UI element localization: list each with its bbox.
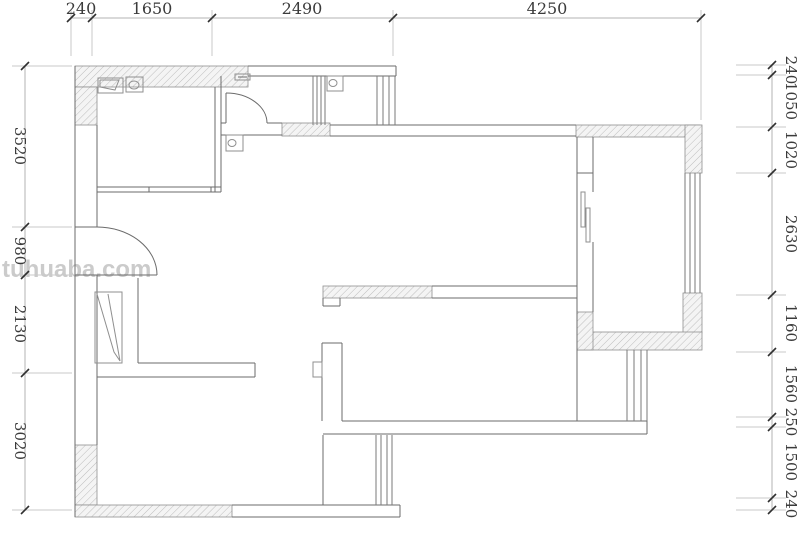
left-wall-bottom	[75, 445, 97, 505]
right-dim-label-1050: 1050	[782, 82, 800, 120]
meter-dial	[228, 140, 236, 147]
left-dim-label-2130: 2130	[11, 305, 29, 343]
fixtures	[95, 74, 590, 377]
slider-leaf-1	[581, 192, 585, 227]
door-swing-arcs	[97, 93, 267, 275]
top-dim-label-1650: 1650	[132, 0, 173, 18]
mid-wall-segment	[282, 123, 330, 136]
wall-tab	[313, 362, 322, 377]
cabinet-diagonal	[97, 294, 120, 361]
right-dim-label-240: 240	[782, 56, 800, 85]
right-dim-label-250: 250	[782, 408, 800, 437]
left-dim-label-3020: 3020	[11, 422, 29, 460]
meter-box	[226, 135, 243, 151]
top-dim-label-2490: 2490	[282, 0, 323, 18]
left-dim-label-980: 980	[11, 237, 29, 266]
right-mid-block	[683, 293, 702, 333]
right-top-corner	[685, 125, 702, 173]
master-left-foot	[577, 312, 593, 350]
right-dim-label-1560: 1560	[782, 365, 800, 403]
right-dim-label-240: 240	[782, 490, 800, 519]
bottom-wall-left	[75, 505, 232, 517]
right-top-wall	[576, 125, 700, 137]
left-wall-top	[75, 87, 97, 125]
right-dim-label-1500: 1500	[782, 443, 800, 481]
wall-hatches	[75, 66, 702, 517]
floor-plan-drawing: 2401650249042503520980213030202401050102…	[0, 0, 800, 540]
top-dim-label-240: 240	[66, 0, 97, 18]
right-dim-label-1160: 1160	[782, 304, 800, 342]
bed2-top-wall	[323, 286, 432, 298]
master-bottom-wall	[578, 332, 702, 350]
right-dim-label-2630: 2630	[782, 215, 800, 253]
top-dim-label-4250: 4250	[527, 0, 568, 18]
slider-leaf-2	[586, 208, 590, 242]
entry-door-arc	[97, 227, 157, 275]
toilet-b-bowl	[329, 80, 337, 87]
top-wall-left	[75, 66, 248, 87]
left-dim-label-3520: 3520	[11, 127, 29, 165]
corridor-door-arc	[226, 93, 267, 123]
right-dim-label-1020: 1020	[782, 131, 800, 169]
floor-plan-page: tuhuaba.com 2401650249042503520980213030…	[0, 0, 800, 540]
